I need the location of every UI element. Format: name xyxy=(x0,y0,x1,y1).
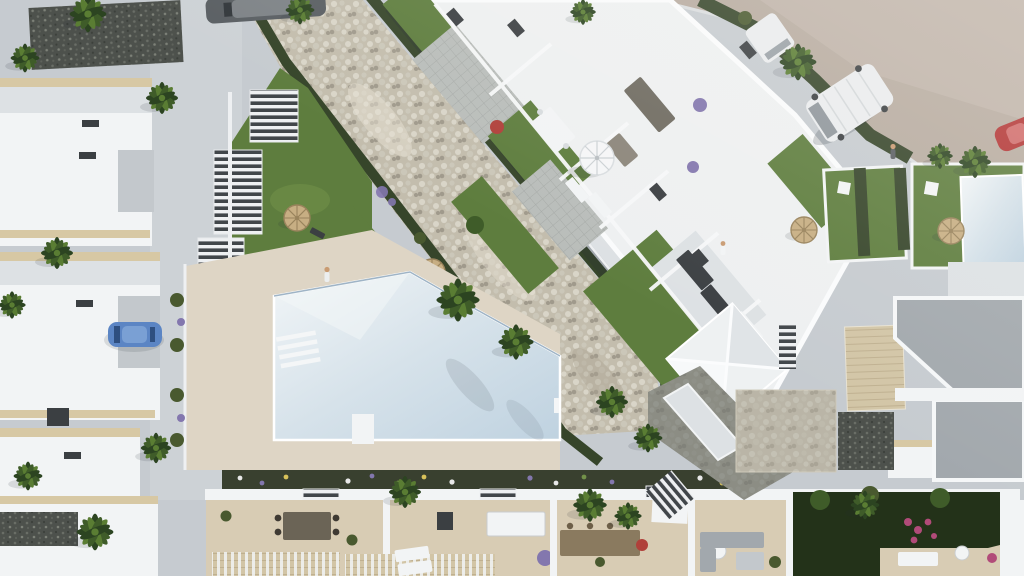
aerial-render xyxy=(0,0,1024,576)
sunlight-overlay xyxy=(0,0,1024,576)
aerial-render-stage xyxy=(0,0,1024,576)
